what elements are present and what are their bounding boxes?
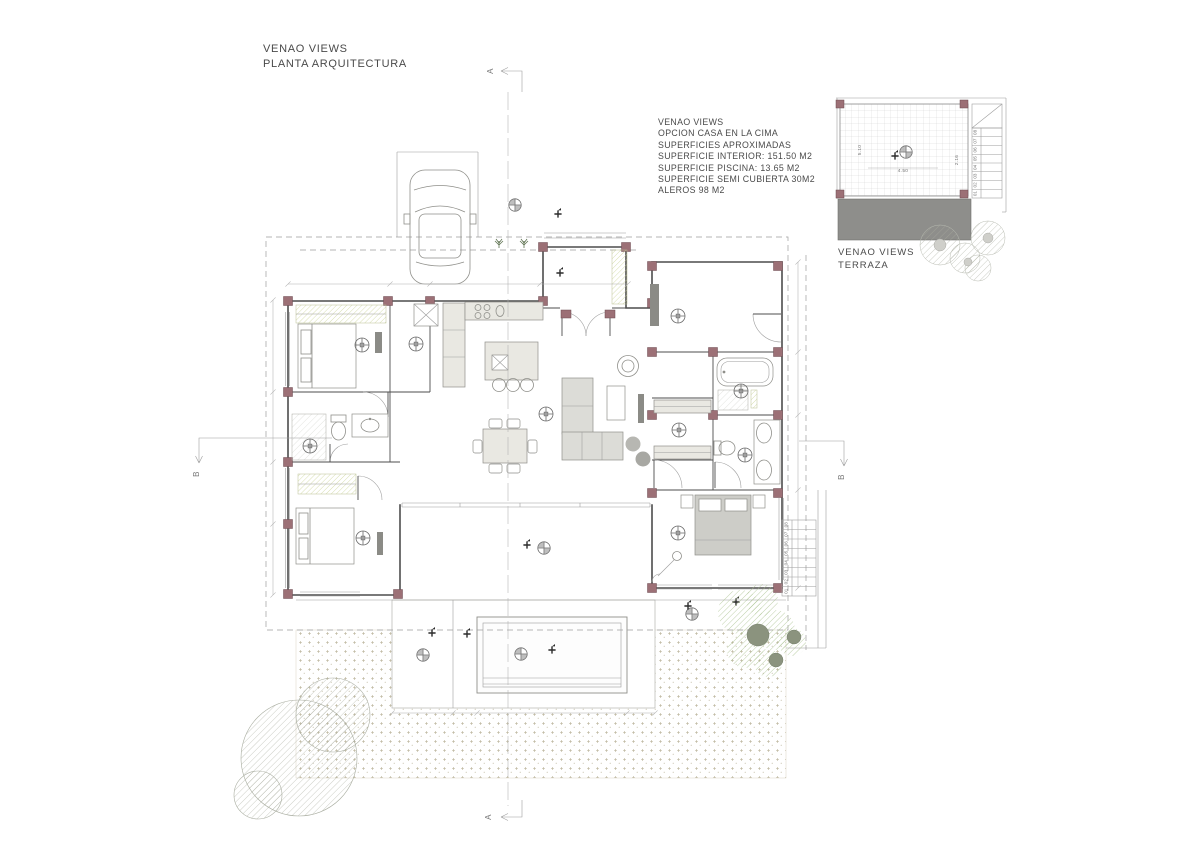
kitchen xyxy=(443,302,543,392)
inset-dim-width: 4.50 xyxy=(898,168,909,174)
stair-step-label: 06 xyxy=(784,541,789,547)
inset-dim-side: 2.16 xyxy=(954,155,960,166)
furniture xyxy=(292,250,780,582)
sheet-title: VENAO VIEWS xyxy=(263,42,407,57)
stair-step-label: 04 xyxy=(784,560,789,566)
section-label-a-bottom: A xyxy=(484,814,493,820)
bed-1 xyxy=(298,324,356,388)
stair-step-label: 08 xyxy=(784,522,789,528)
pool xyxy=(477,617,627,693)
dining-table xyxy=(483,429,527,463)
inset-step-label: 01 xyxy=(973,191,978,197)
plan-drawing: 08 07 06 05 04 03 02 01 xyxy=(0,0,1200,848)
main-stairs: 08 07 06 05 04 03 02 01 xyxy=(782,520,816,596)
section-label-a-top: A xyxy=(486,68,495,74)
stool xyxy=(521,379,534,392)
info-line: VENAO VIEWS xyxy=(658,117,815,128)
living-room xyxy=(562,356,651,467)
sheet-subtitle: PLANTA ARQUITECTURA xyxy=(263,57,407,72)
floorplan-sheet: 08 07 06 05 04 03 02 01 xyxy=(0,0,1200,848)
bathroom-1 xyxy=(292,414,388,460)
trees-left xyxy=(234,678,370,819)
inset-level-marker xyxy=(900,146,912,158)
info-block: VENAO VIEWS OPCION CASA EN LA CIMA SUPER… xyxy=(658,117,815,197)
inset-stairs: 08 07 06 05 04 03 02 01 xyxy=(972,104,1002,198)
info-line: OPCION CASA EN LA CIMA xyxy=(658,128,815,139)
master-bath xyxy=(714,358,780,484)
inset-step-label: 08 xyxy=(973,129,978,135)
inset-step-label: 07 xyxy=(973,138,978,144)
inset-step-label: 04 xyxy=(973,164,978,170)
tv-unit xyxy=(638,394,644,423)
side-table xyxy=(607,386,625,420)
inset-dim-height: 5.10 xyxy=(857,145,863,156)
dining xyxy=(473,419,537,473)
stool xyxy=(507,379,520,392)
info-line: SUPERFICIE PISCINA: 13.65 M2 xyxy=(658,163,815,174)
bed-2 xyxy=(296,508,354,564)
section-label-b-left: B xyxy=(192,471,201,477)
stool xyxy=(493,379,506,392)
inset-step-label: 05 xyxy=(973,156,978,162)
toilet-2 xyxy=(719,441,735,455)
palm-trunk xyxy=(769,653,783,667)
sofa-chaise xyxy=(562,432,623,460)
bedroom-1 xyxy=(296,305,386,388)
inset-step-label: 03 xyxy=(973,173,978,179)
floor-lamp xyxy=(673,552,682,561)
master-bedroom xyxy=(652,495,765,582)
laundry-closet xyxy=(414,304,438,326)
terrace-counter xyxy=(650,284,659,326)
entry-closet xyxy=(612,250,627,304)
ottoman xyxy=(626,437,641,452)
shower-2 xyxy=(718,390,748,410)
stair-step-label: 01 xyxy=(784,588,789,594)
entry-shrubs xyxy=(495,239,528,248)
lounge-chair xyxy=(618,356,639,377)
palm-trunk xyxy=(747,624,769,646)
car xyxy=(404,170,476,284)
title-block: VENAO VIEWS PLANTA ARQUITECTURA xyxy=(263,42,407,72)
inset-subtitle: TERRAZA xyxy=(838,259,914,272)
section-label-b-right: B xyxy=(837,474,846,480)
ottoman xyxy=(636,452,651,467)
bedroom-2 xyxy=(296,474,383,564)
pantry xyxy=(443,303,465,387)
stair-step-label: 07 xyxy=(784,531,789,537)
inset-step-label: 02 xyxy=(973,182,978,188)
stair-step-label: 05 xyxy=(784,550,789,556)
stair-step-label: 02 xyxy=(784,579,789,585)
stair-step-label: 03 xyxy=(784,569,789,575)
walkin-closet xyxy=(654,400,711,459)
palm-trunk xyxy=(787,630,801,644)
inset-label-block: VENAO VIEWS TERRAZA xyxy=(838,246,914,272)
info-line: ALEROS 98 M2 xyxy=(658,185,815,196)
inset-title: VENAO VIEWS xyxy=(838,246,914,259)
info-line: SUPERFICIES APROXIMADAS xyxy=(658,140,815,151)
info-line: SUPERFICIE SEMI CUBIERTA 30M2 xyxy=(658,174,815,185)
vanity xyxy=(754,420,780,484)
inset-step-label: 06 xyxy=(973,147,978,153)
info-line: SUPERFICIE INTERIOR: 151.50 M2 xyxy=(658,151,815,162)
toilet-1 xyxy=(332,422,346,440)
